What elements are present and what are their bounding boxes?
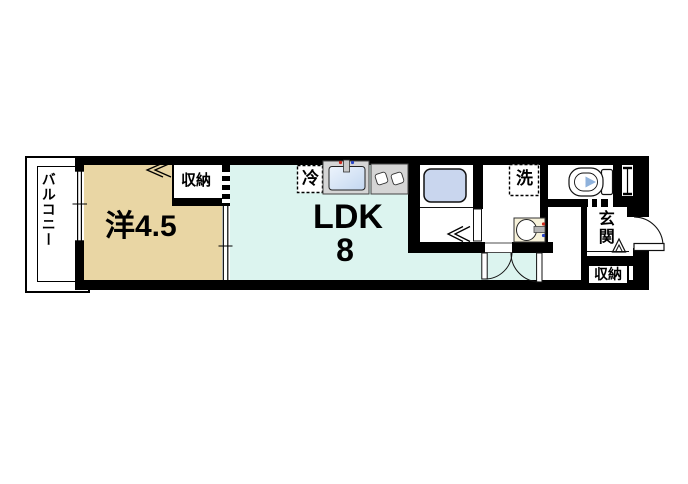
entrance-step-icon — [613, 239, 626, 252]
washbasin-icon — [514, 218, 545, 242]
entrance-door-icon — [633, 217, 664, 251]
laundry-label: 洗 — [510, 170, 539, 188]
stove-icon — [371, 164, 408, 194]
bath-door-panel — [474, 209, 482, 241]
entrance-label: 玄関 — [595, 210, 612, 256]
symbols-layer — [0, 0, 688, 484]
washroom-door-arc-icon — [482, 253, 512, 279]
hall-door-arc-icon — [511, 253, 542, 282]
window-icon — [73, 170, 88, 242]
toilet-window-icon — [622, 166, 633, 196]
sliding-door-icon — [219, 206, 233, 280]
washroom-door-sill — [485, 243, 512, 253]
kitchen-sink-icon — [323, 160, 369, 194]
toilet-icon — [569, 168, 613, 196]
bathtub-icon — [420, 169, 473, 208]
floor-plan: バルコニー 収納 収納 洋4.5 LDK 8 冷 洗 玄関 — [0, 0, 688, 484]
bath-bifold-door-icon — [448, 227, 470, 242]
refrigerator-label: 冷 — [298, 170, 323, 188]
entrance-closet-label: 収納 — [588, 267, 628, 282]
bifold-door-icon — [147, 163, 171, 177]
